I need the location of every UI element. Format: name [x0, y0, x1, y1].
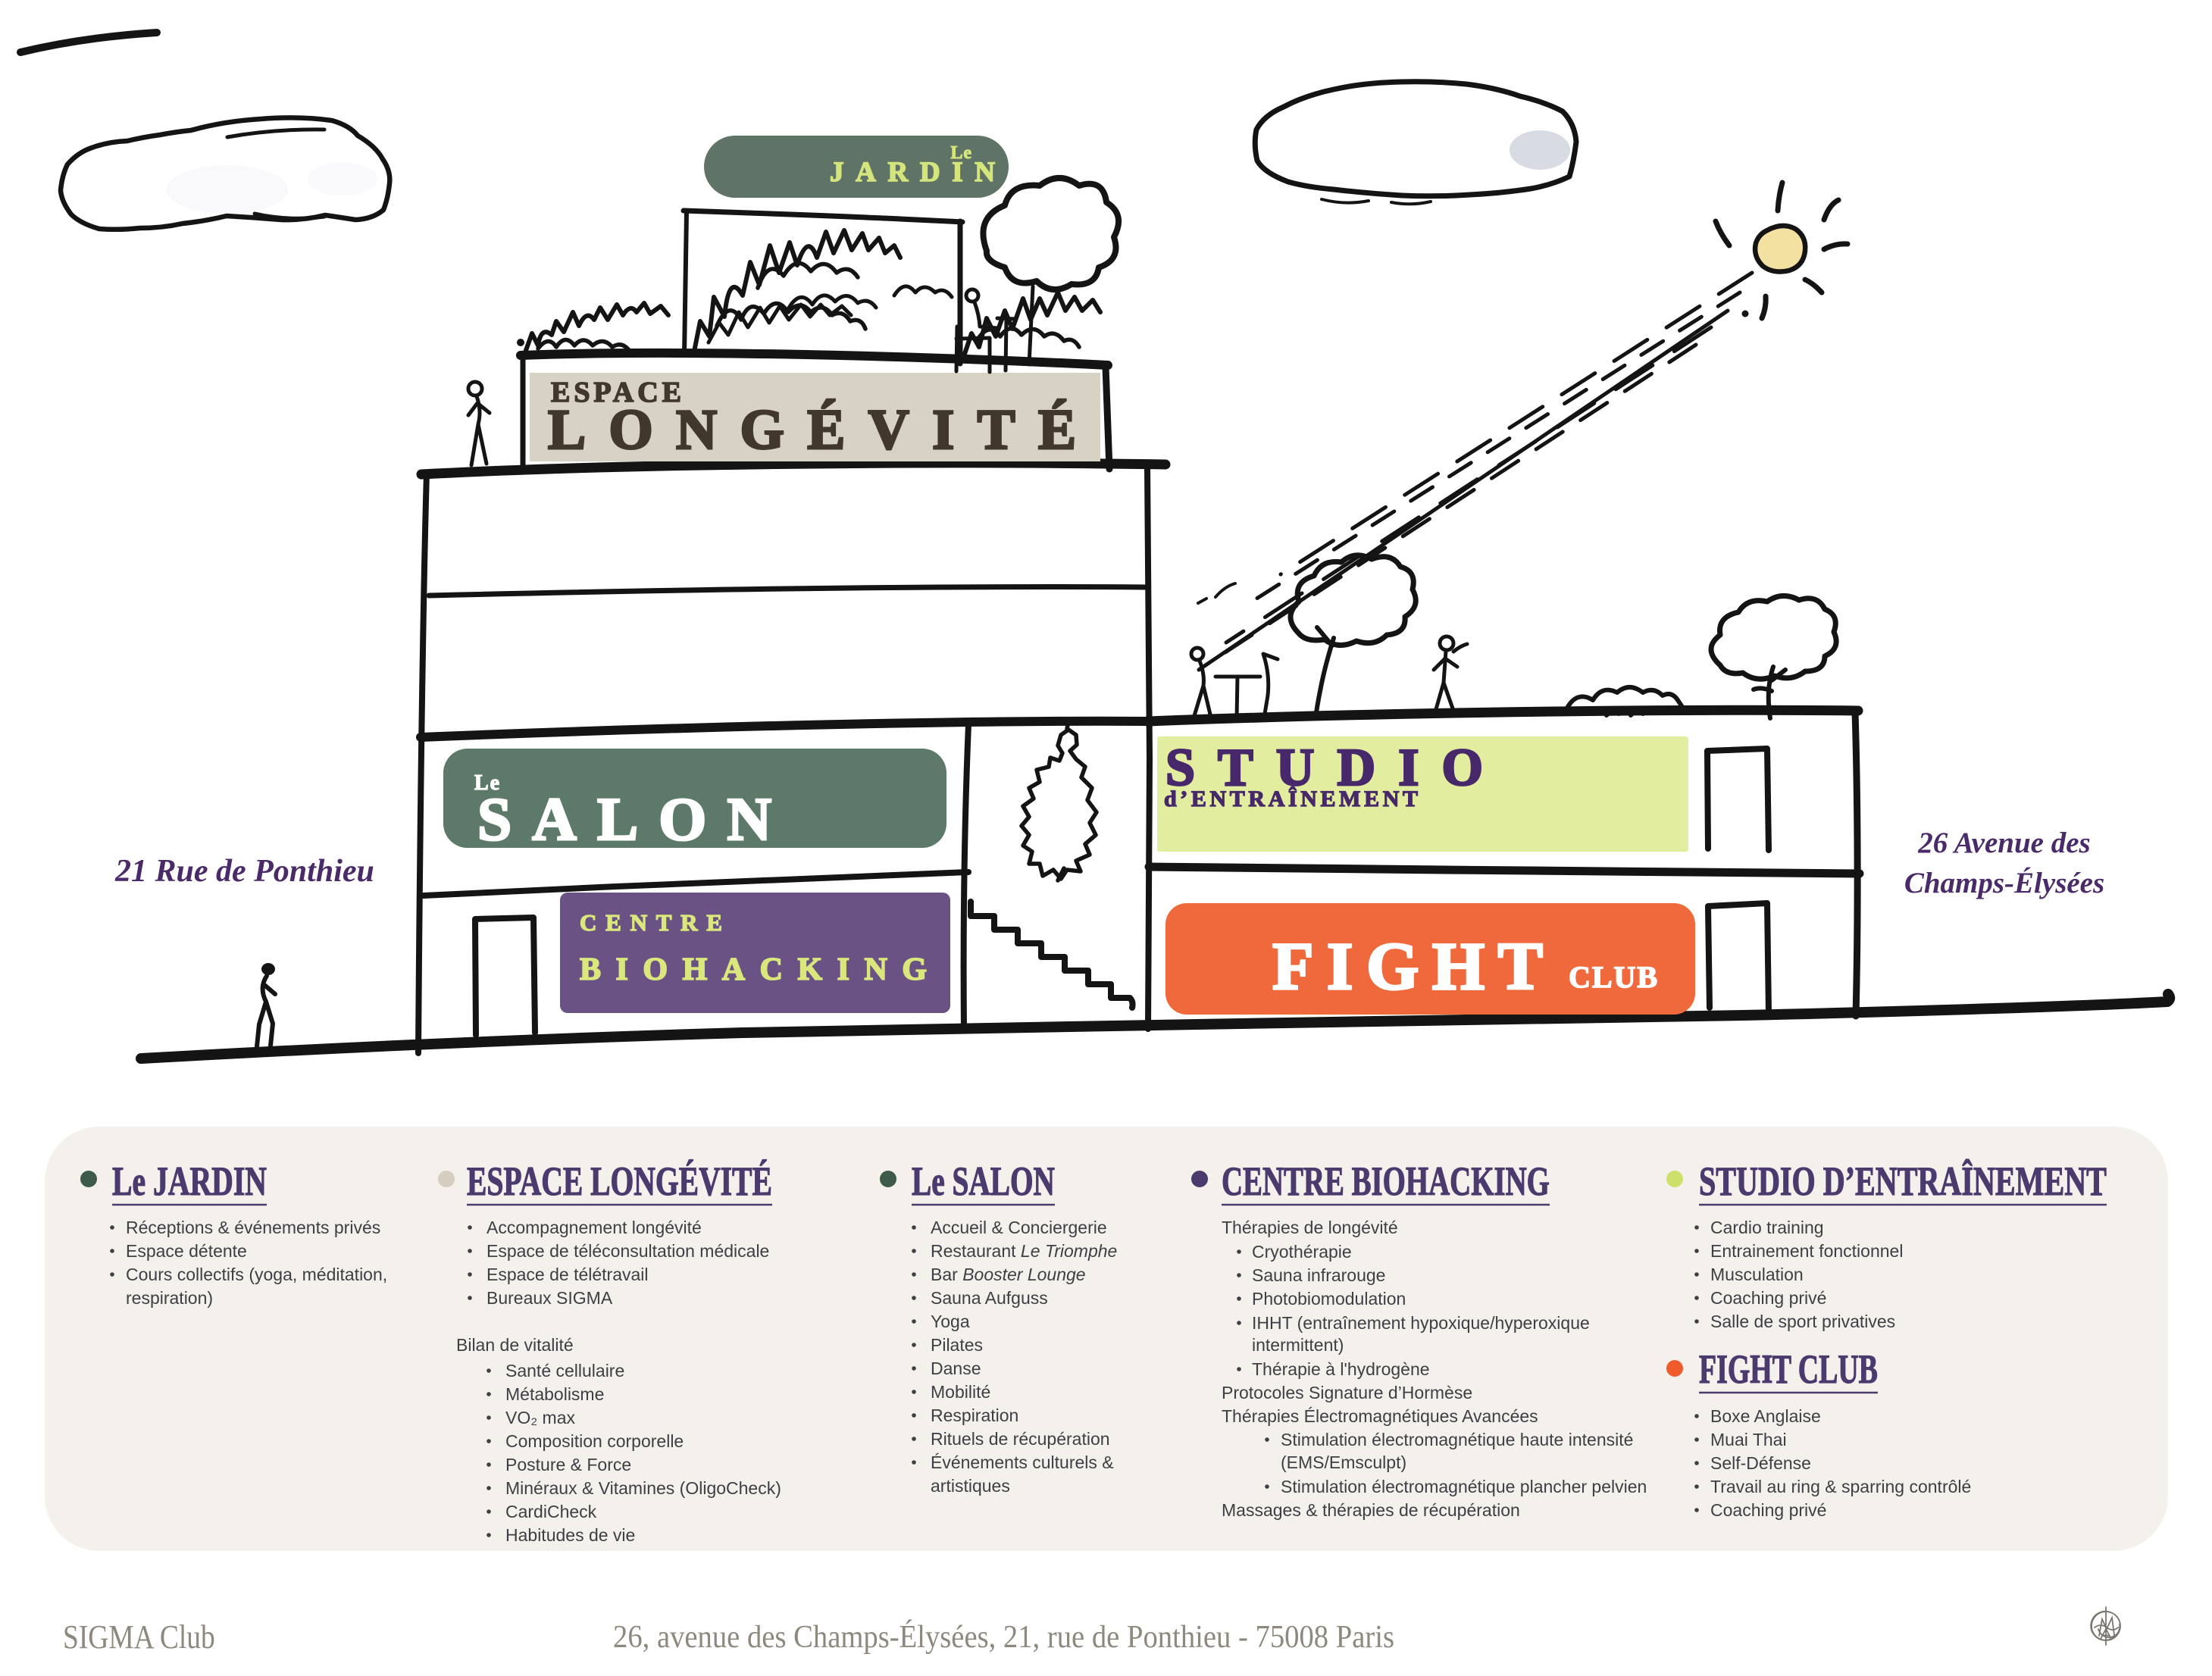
svg-text:ESPACE LONGÉVITÉ: ESPACE LONGÉVITÉ: [467, 1159, 772, 1204]
svg-text:Rituels de récupération: Rituels de récupération: [931, 1429, 1110, 1449]
svg-text:CLUB: CLUB: [1569, 960, 1657, 994]
svg-text:Bar Booster Lounge: Bar Booster Lounge: [931, 1265, 1086, 1284]
svg-text:FIGHT CLUB: FIGHT CLUB: [1699, 1347, 1878, 1393]
svg-text:FIGHT: FIGHT: [1272, 930, 1543, 1004]
svg-text:Massages & thérapies de récupé: Massages & thérapies de récupération: [1222, 1500, 1520, 1520]
svg-text:IHHT (entraînement hypoxique/h: IHHT (entraînement hypoxique/hyperoxique: [1252, 1313, 1590, 1333]
svg-text:LONGÉVITÉ: LONGÉVITÉ: [548, 399, 1076, 461]
svg-text:Cardio training: Cardio training: [1710, 1218, 1824, 1237]
svg-text:SIGMA Club: SIGMA Club: [63, 1618, 215, 1655]
svg-text:intermittent): intermittent): [1252, 1335, 1344, 1355]
svg-text:Cours collectifs (yoga, médita: Cours collectifs (yoga, méditation,: [126, 1265, 387, 1284]
svg-text:Sauna infrarouge: Sauna infrarouge: [1252, 1265, 1385, 1285]
svg-text:Respiration: Respiration: [931, 1406, 1018, 1425]
svg-text:Le JARDIN: Le JARDIN: [112, 1159, 267, 1204]
svg-text:Accompagnement longévité: Accompagnement longévité: [487, 1218, 702, 1237]
svg-text:Coaching privé: Coaching privé: [1710, 1288, 1826, 1308]
svg-text:Thérapies de longévité: Thérapies de longévité: [1222, 1218, 1398, 1237]
svg-text:Muai Thai: Muai Thai: [1710, 1430, 1787, 1449]
svg-text:Bilan de vitalité: Bilan de vitalité: [456, 1335, 574, 1355]
svg-text:Champs-Élysées: Champs-Élysées: [1904, 866, 2104, 899]
svg-text:Stimulation électromagnétique: Stimulation électromagnétique haute inte…: [1281, 1430, 1633, 1449]
svg-text:VO₂ max: VO₂ max: [505, 1408, 576, 1427]
svg-text:Yoga: Yoga: [931, 1312, 970, 1331]
svg-text:artistiques: artistiques: [931, 1476, 1010, 1496]
svg-text:Danse: Danse: [931, 1359, 981, 1378]
svg-text:26 Avenue des: 26 Avenue des: [1917, 827, 2090, 859]
svg-text:21 Rue de Ponthieu: 21 Rue de Ponthieu: [114, 854, 374, 889]
svg-text:Minéraux & Vitamines (OligoChe: Minéraux & Vitamines (OligoCheck): [505, 1478, 781, 1498]
svg-text:Thérapies Électromagnétiques A: Thérapies Électromagnétiques Avancées: [1222, 1406, 1538, 1426]
svg-text:Travail au ring & sparring con: Travail au ring & sparring contrôlé: [1710, 1477, 1971, 1496]
svg-text:Cryothérapie: Cryothérapie: [1252, 1242, 1352, 1262]
svg-text:Stimulation électromagnétique: Stimulation électromagnétique plancher p…: [1281, 1477, 1647, 1496]
svg-text:Thérapie à l'hydrogène: Thérapie à l'hydrogène: [1252, 1359, 1430, 1379]
svg-text:Habitudes de vie: Habitudes de vie: [505, 1525, 635, 1545]
svg-text:Composition corporelle: Composition corporelle: [505, 1431, 684, 1451]
svg-text:Restaurant Le Triomphe: Restaurant Le Triomphe: [931, 1241, 1117, 1261]
svg-text:CardiCheck: CardiCheck: [505, 1502, 597, 1521]
svg-text:respiration): respiration): [126, 1288, 213, 1308]
svg-text:26, avenue des Champs-Élysées,: 26, avenue des Champs-Élysées, 21, rue d…: [613, 1619, 1394, 1655]
svg-text:Musculation: Musculation: [1710, 1265, 1804, 1284]
svg-text:Boxe Anglaise: Boxe Anglaise: [1710, 1406, 1821, 1426]
svg-text:Le SALON: Le SALON: [912, 1159, 1055, 1204]
svg-text:Santé cellulaire: Santé cellulaire: [505, 1361, 624, 1381]
svg-text:Bureaux SIGMA: Bureaux SIGMA: [487, 1288, 613, 1308]
svg-text:Espace détente: Espace détente: [126, 1241, 247, 1261]
svg-text:Mobilité: Mobilité: [931, 1382, 990, 1402]
svg-text:CENTRE BIOHACKING: CENTRE BIOHACKING: [1222, 1159, 1550, 1205]
svg-text:Posture & Force: Posture & Force: [505, 1455, 631, 1474]
svg-text:Sauna Aufguss: Sauna Aufguss: [931, 1288, 1048, 1308]
svg-text:Coaching privé: Coaching privé: [1710, 1500, 1826, 1520]
svg-text:Espace de télétravail: Espace de télétravail: [487, 1265, 649, 1284]
svg-text:Protocoles Signature d’Hormèse: Protocoles Signature d’Hormèse: [1222, 1383, 1472, 1402]
svg-text:Photobiomodulation: Photobiomodulation: [1252, 1289, 1406, 1309]
svg-text:Pilates: Pilates: [931, 1335, 983, 1355]
svg-text:STUDIO D’ENTRAÎNEMENT: STUDIO D’ENTRAÎNEMENT: [1699, 1158, 2107, 1204]
svg-text:Espace de téléconsultation méd: Espace de téléconsultation médicale: [487, 1241, 769, 1261]
svg-text:Self-Défense: Self-Défense: [1710, 1453, 1811, 1473]
svg-text:Entrainement fonctionnel: Entrainement fonctionnel: [1710, 1241, 1903, 1261]
svg-text:(EMS/Emsculpt): (EMS/Emsculpt): [1281, 1452, 1406, 1472]
svg-text:Réceptions & événements privés: Réceptions & événements privés: [126, 1218, 380, 1237]
svg-text:Accueil & Conciergerie: Accueil & Conciergerie: [931, 1218, 1107, 1237]
svg-text:Événements culturels &: Événements culturels &: [931, 1452, 1114, 1472]
svg-text:Métabolisme: Métabolisme: [505, 1384, 604, 1404]
svg-text:Salle de sport privatives: Salle de sport privatives: [1710, 1312, 1895, 1331]
